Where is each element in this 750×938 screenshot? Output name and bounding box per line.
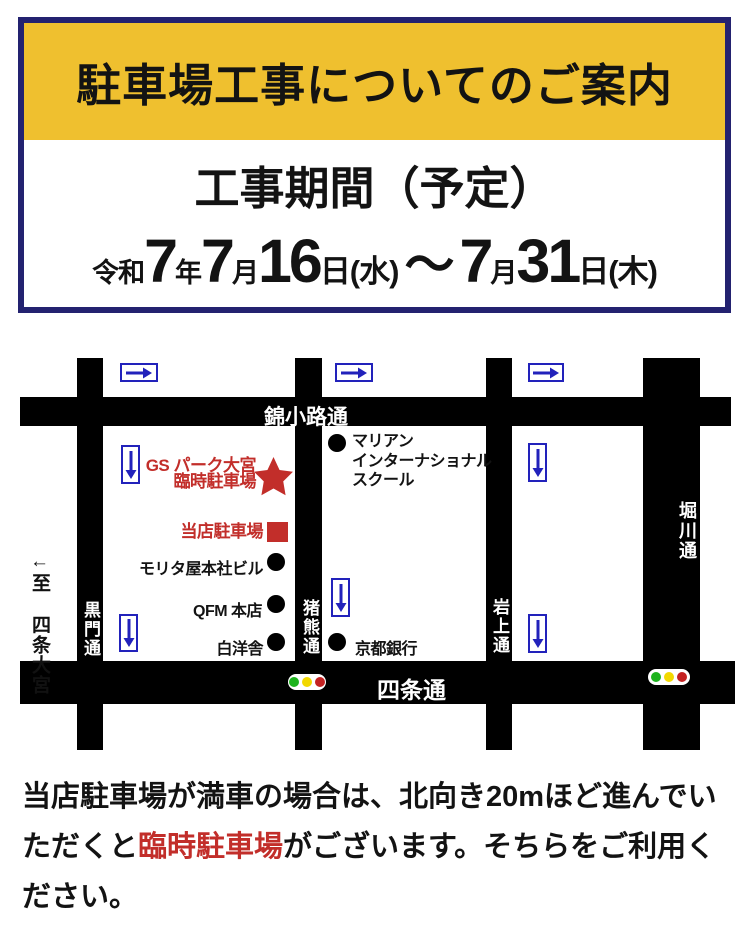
temp-parking-star-icon — [253, 456, 294, 497]
marian-line3: スクール — [352, 471, 492, 491]
notice-line2-highlight: 臨時駐車場 — [138, 831, 283, 863]
down-arrow-glyph — [123, 618, 135, 648]
morita-label: モリタ屋本社ビル — [139, 555, 263, 579]
street-label-horikawa: 堀川通 — [643, 501, 700, 561]
down-arrow-glyph — [335, 583, 347, 613]
street-label-shijo: 四条通 — [377, 671, 446, 705]
street-label-nishikikoji: 錦小路通 — [264, 401, 348, 431]
traffic-light-icon — [288, 674, 326, 690]
signal-red — [677, 672, 687, 682]
street-label-inokuma: 猪熊通 — [295, 599, 322, 656]
down-arrow-icon — [121, 445, 140, 484]
signal-green — [289, 677, 299, 687]
marian-school-dot — [328, 434, 346, 452]
signal-yellow — [664, 672, 674, 682]
road-nishikikoji-dori — [20, 397, 731, 426]
down-arrow-icon — [119, 614, 138, 652]
our-parking-square-icon — [267, 522, 288, 542]
street-label-kuromon: 黒門通 — [77, 601, 103, 658]
right-arrow-icon — [528, 363, 564, 382]
down-arrow-icon — [528, 443, 547, 482]
right-arrow-icon — [120, 363, 158, 382]
street-label-iwagami: 岩上通 — [486, 598, 512, 655]
down-arrow-glyph — [532, 619, 544, 649]
right-arrow-glyph — [340, 367, 368, 379]
notice-line2-post: がございます。そちらをご利用く — [283, 831, 715, 863]
signal-yellow — [302, 677, 312, 687]
kyoto-bank-dot — [328, 633, 346, 651]
to-shijo-omiya-label: ←至 四条大宮 — [26, 551, 53, 695]
notice-paragraph: 当店駐車場が満車の場合は、北向き20mほど進んでい ただくと臨時駐車場がございま… — [22, 772, 738, 922]
our-parking-label: 当店駐車場 — [181, 524, 264, 540]
traffic-light-icon — [648, 669, 690, 685]
right-arrow-icon — [335, 363, 373, 382]
hakuyosha-label: 白洋舎 — [216, 635, 263, 659]
signal-red — [315, 677, 325, 687]
right-arrow-glyph — [532, 367, 560, 379]
temp-parking-line2: 臨時駐車場 — [146, 474, 256, 490]
kyoto-bank-label: 京都銀行 — [355, 635, 417, 659]
marian-line1: マリアン — [352, 432, 492, 452]
down-arrow-glyph — [532, 448, 544, 478]
signal-green — [651, 672, 661, 682]
down-arrow-icon — [528, 614, 547, 653]
marian-school-label: マリアン インターナショナル スクール — [352, 432, 492, 491]
notice-line2: ただくと臨時駐車場がございます。そちらをご利用く — [22, 822, 738, 872]
morita-dot — [267, 553, 285, 571]
hakuyosha-dot — [267, 633, 285, 651]
parking-notice-flyer: 駐車場工事についてのご案内 工事期間（予定） 令和 7 年 7 月 16 日(水… — [0, 0, 750, 938]
down-arrow-icon — [331, 578, 350, 617]
notice-line3: ださい。 — [22, 872, 738, 922]
qfm-label: QFM 本店 — [193, 597, 262, 621]
qfm-dot — [267, 595, 285, 613]
right-arrow-glyph — [125, 367, 153, 379]
marian-line2: インターナショナル — [352, 452, 492, 472]
temp-parking-label: GS パーク大宮 臨時駐車場 — [146, 458, 256, 490]
notice-line2-pre: ただくと — [22, 831, 138, 863]
notice-line1: 当店駐車場が満車の場合は、北向き20mほど進んでい — [22, 772, 738, 822]
down-arrow-glyph — [125, 450, 137, 480]
